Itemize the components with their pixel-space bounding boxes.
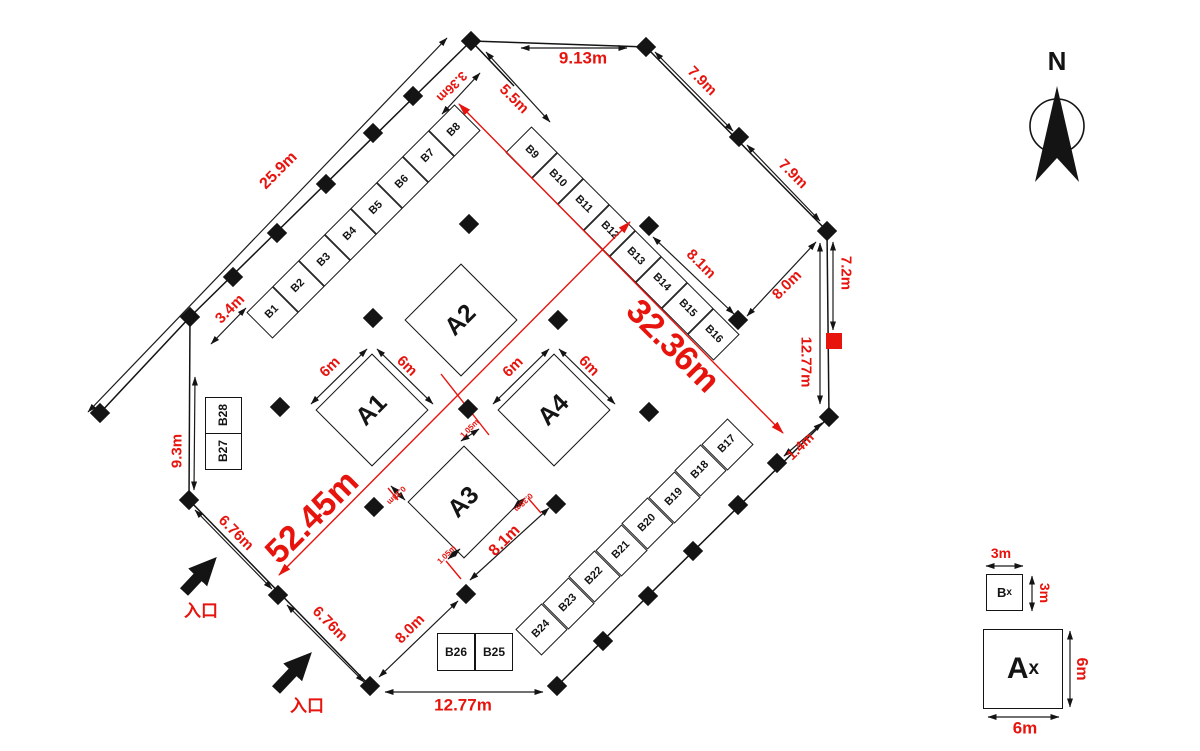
booth-b26-label: B26 — [445, 646, 467, 658]
red-marker-square — [826, 333, 842, 349]
dim-6m-a1-right: 6m — [394, 353, 420, 379]
booth-b16-label: B16 — [702, 323, 724, 345]
booth-b1-label: B1 — [263, 303, 281, 321]
booth-b5-label: B5 — [367, 199, 385, 217]
booth-a1-label: A1 — [352, 390, 392, 430]
dim-5-5: 5.5m — [497, 82, 532, 117]
legend-a-height: 6m — [1073, 657, 1089, 680]
dim-0-38-right: 0.38m — [512, 491, 534, 513]
dim-8-0-ne: 8.0m — [770, 268, 805, 303]
north-label: N — [1048, 48, 1067, 74]
booth-a4-label: A4 — [534, 390, 574, 430]
dim-1-4: 1.4m — [784, 430, 816, 462]
dim-3-36: 3.36m — [434, 69, 469, 104]
booth-b4-label: B4 — [341, 225, 359, 243]
booth-b10-label: B10 — [546, 167, 568, 189]
dim-3-4: 3.4m — [213, 292, 248, 327]
booth-a2: A2 — [404, 263, 517, 376]
dim-7-9-a: 7.9m — [685, 64, 720, 99]
dim-25-9: 25.9m — [257, 149, 300, 192]
dim-8-1-ne: 8.1m — [684, 247, 719, 282]
booth-b25: B25 — [475, 633, 513, 671]
booth-b27: B27 — [205, 433, 242, 470]
legend-b-width: 3m — [991, 546, 1011, 560]
dim-0-38-left: 0.38m — [385, 484, 407, 506]
booth-b20-label: B20 — [636, 512, 658, 534]
dim-7-9-b: 7.9m — [776, 157, 811, 192]
dim-12-77-east: 12.77m — [799, 337, 814, 388]
dim-9-13: 9.13m — [559, 50, 607, 67]
booth-b14-label: B14 — [650, 271, 672, 293]
dim-9-3: 9.3m — [170, 434, 185, 468]
dim-6m-a4-left: 6m — [500, 354, 526, 380]
booth-b2-label: B2 — [289, 277, 307, 295]
floor-plan: 25.9m 3.4m 9.3m 3.36m 9.13m 5.5m 7.9m 7.… — [0, 0, 1200, 751]
dim-8-0-sw: 8.0m — [393, 612, 428, 647]
legend-a-sub: x — [1029, 658, 1040, 680]
legend-b-height: 3m — [1038, 583, 1052, 603]
entrance-label-2: 入口 — [290, 698, 324, 715]
legend-b-letter: B — [997, 585, 1006, 600]
booth-b7-label: B7 — [419, 147, 437, 165]
booth-b23-label: B23 — [557, 592, 579, 614]
booth-a3-label: A3 — [444, 482, 484, 522]
dim-6m-a4-right: 6m — [576, 353, 602, 379]
booth-b3-label: B3 — [315, 251, 333, 269]
dim-1-05-top: 1.05m — [459, 418, 481, 440]
booth-a2-label: A2 — [441, 300, 481, 340]
booth-b8-label: B8 — [445, 121, 463, 139]
booth-b27-label: B27 — [217, 440, 229, 462]
dim-6m-a1-left: 6m — [317, 354, 343, 380]
booth-b12-label: B12 — [598, 219, 620, 241]
booth-b17-label: B17 — [716, 433, 738, 455]
dim-52-45: 52.45m — [259, 464, 365, 570]
legend-booth-b: Bx — [986, 574, 1023, 611]
legend-a-letter: A — [1007, 652, 1029, 686]
booth-b25-label: B25 — [483, 646, 505, 658]
legend-a-width: 6m — [1013, 720, 1038, 737]
booth-b26: B26 — [437, 633, 475, 671]
booth-b22-label: B22 — [583, 565, 605, 587]
dim-6-76-b: 6.76m — [310, 604, 351, 645]
booth-b6-label: B6 — [393, 173, 411, 191]
entrance-arrow-icons — [184, 576, 294, 690]
north-arrow-icon — [1030, 86, 1084, 182]
booth-b19-label: B19 — [663, 486, 685, 508]
entrance-label-1: 入口 — [184, 603, 218, 620]
booth-b28-label: B28 — [217, 404, 229, 426]
dim-7-2: 7.2m — [839, 256, 854, 290]
booth-b11-label: B11 — [572, 193, 594, 215]
legend-booth-a: Ax — [983, 629, 1063, 709]
booth-b28: B28 — [205, 397, 242, 434]
booth-b13-label: B13 — [624, 245, 646, 267]
booth-b9-label: B9 — [522, 143, 540, 161]
dim-1-05-bottom: 1.05m — [436, 544, 458, 566]
booth-b15-label: B15 — [676, 297, 698, 319]
booth-b24-label: B24 — [530, 618, 552, 640]
booth-b18-label: B18 — [689, 459, 711, 481]
dim-6-76-a: 6.76m — [216, 513, 257, 554]
booth-b21-label: B21 — [610, 539, 632, 561]
dim-12-77-south: 12.77m — [434, 697, 492, 714]
legend-b-sub: x — [1006, 587, 1012, 598]
